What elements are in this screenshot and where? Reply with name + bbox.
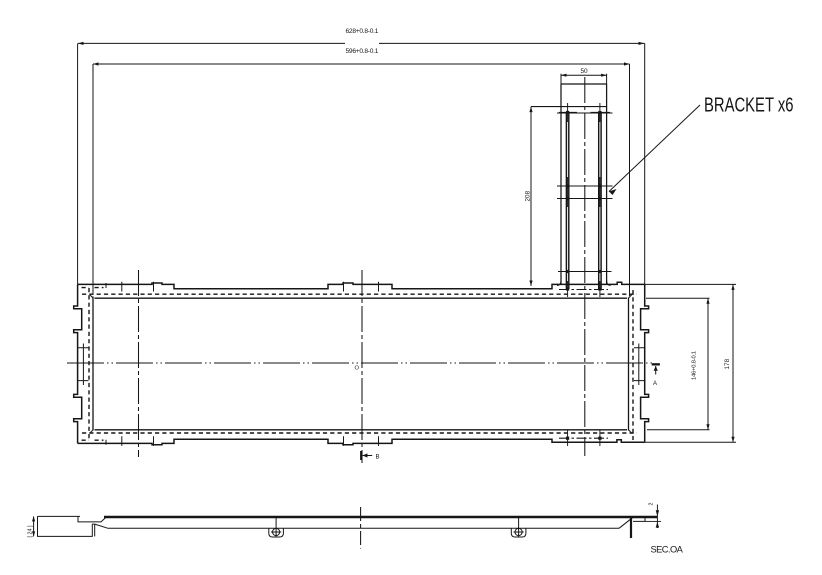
svg-text:146+0.8-0.1: 146+0.8-0.1 — [692, 351, 698, 380]
svg-text:[ 24 ]: [ 24 ] — [28, 525, 34, 537]
svg-text:O: O — [355, 366, 360, 372]
svg-text:628+0.8-0.1: 628+0.8-0.1 — [346, 28, 379, 35]
svg-text:208: 208 — [525, 190, 532, 201]
svg-text:A: A — [653, 381, 657, 387]
svg-text:50: 50 — [581, 68, 589, 75]
svg-text:2: 2 — [649, 503, 655, 506]
svg-text:178: 178 — [724, 358, 731, 369]
svg-text:596+0.8-0.1: 596+0.8-0.1 — [346, 48, 379, 55]
svg-text:BRACKET x6: BRACKET x6 — [704, 94, 794, 117]
svg-text:SEC.OA: SEC.OA — [651, 544, 684, 554]
svg-text:B: B — [376, 454, 380, 460]
